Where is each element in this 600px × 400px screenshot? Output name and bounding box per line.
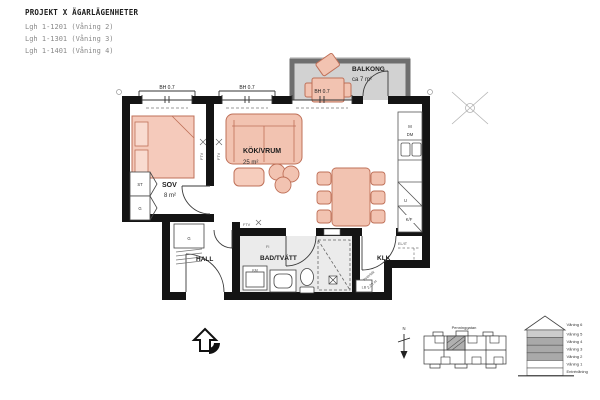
balcony-door-height-label: BH 0.7	[314, 89, 330, 95]
corner-marker-right	[428, 90, 433, 95]
sofa	[226, 114, 302, 164]
hall-livingroom-door	[214, 230, 232, 248]
corner-marker-left	[117, 90, 122, 95]
entrance-arrow-icon	[194, 329, 220, 354]
oven-label: U	[404, 198, 407, 203]
microwave-label: M	[408, 124, 412, 129]
kitchen-counter	[398, 112, 422, 232]
living-room: M DM U K/F KÖK/VRUM 25 m² FTV FTV	[200, 112, 422, 232]
elit-dashes	[398, 248, 420, 260]
window-1	[139, 91, 195, 104]
hall-label: HALL	[196, 256, 213, 263]
floor-label-4: Våning 4	[567, 339, 584, 344]
bedroom-area: 8 m²	[164, 193, 176, 199]
floor-label-2: Våning 2	[567, 354, 584, 359]
wardrobe-g-label: G	[138, 206, 141, 211]
floor-label-6: Våning 6	[567, 322, 584, 327]
pillow-2	[135, 150, 148, 174]
coffee-table	[234, 168, 264, 186]
building-section: Våning 6 Våning 5 Våning 4 Våning 3 Våni…	[518, 316, 588, 376]
dishwasher-label: DM	[407, 132, 414, 137]
livingroom-area: 25 m²	[243, 160, 258, 166]
window-2-height-label: BH 0.7	[239, 85, 255, 91]
floor-label-3: Våning 3	[567, 347, 584, 352]
pouf-group	[269, 164, 299, 193]
livingroom-label: KÖK/VRUM	[243, 146, 281, 155]
pillow-1	[135, 122, 148, 146]
wardrobes	[130, 172, 157, 220]
fi-label: FI	[266, 245, 269, 249]
north-label: N	[402, 326, 405, 331]
floor-label-5: Våning 5	[567, 332, 584, 337]
bathroom-label: BAD/TVÄTT	[260, 254, 297, 262]
ftv-label-left: FTV	[200, 152, 204, 160]
bedroom: ST G SOV 8 m²	[130, 116, 194, 220]
ftv-label-right: FTV	[217, 152, 221, 160]
north-arrow: N	[398, 326, 410, 359]
klk-label: KLK	[377, 255, 391, 262]
bedroom-label: SOV	[162, 182, 177, 189]
elit-label: EL/IT	[398, 242, 408, 246]
vanity-sink	[270, 270, 296, 292]
section-floors	[527, 330, 563, 376]
ftv-bath-x	[256, 220, 261, 225]
fridge-freezer-label: K/F	[406, 217, 413, 222]
section-roof	[525, 316, 565, 330]
toilet	[300, 269, 314, 294]
dining-set	[317, 168, 385, 226]
street-label: Penninggatan	[452, 325, 477, 330]
bedroom-door	[182, 186, 210, 214]
floor-label-entre: Entrévåning	[567, 369, 588, 374]
window-1-height-label: BH 0.7	[159, 85, 175, 91]
ftv-bath-label: FTV	[243, 223, 251, 227]
floorplan-svg: BALKONG ca 7 m²	[0, 0, 600, 400]
hall-wardrobe-label: G	[187, 236, 190, 241]
floorplan-page: PROJEKT X ÄGARLÄGENHETER Lgh 1-1201 (Vån…	[0, 0, 600, 400]
north-arrow-head	[401, 351, 408, 359]
washer-label: KM	[252, 269, 258, 273]
balcony: BALKONG ca 7 m²	[290, 53, 410, 102]
wardrobe-st-label: ST	[137, 182, 143, 187]
floor-label-1: Våning 1	[567, 362, 584, 367]
compass-icon	[452, 92, 488, 124]
site-plan: Penninggatan	[424, 325, 506, 368]
wall-niche	[324, 229, 340, 235]
hall: G HALL	[174, 224, 213, 264]
window-2	[219, 91, 275, 104]
